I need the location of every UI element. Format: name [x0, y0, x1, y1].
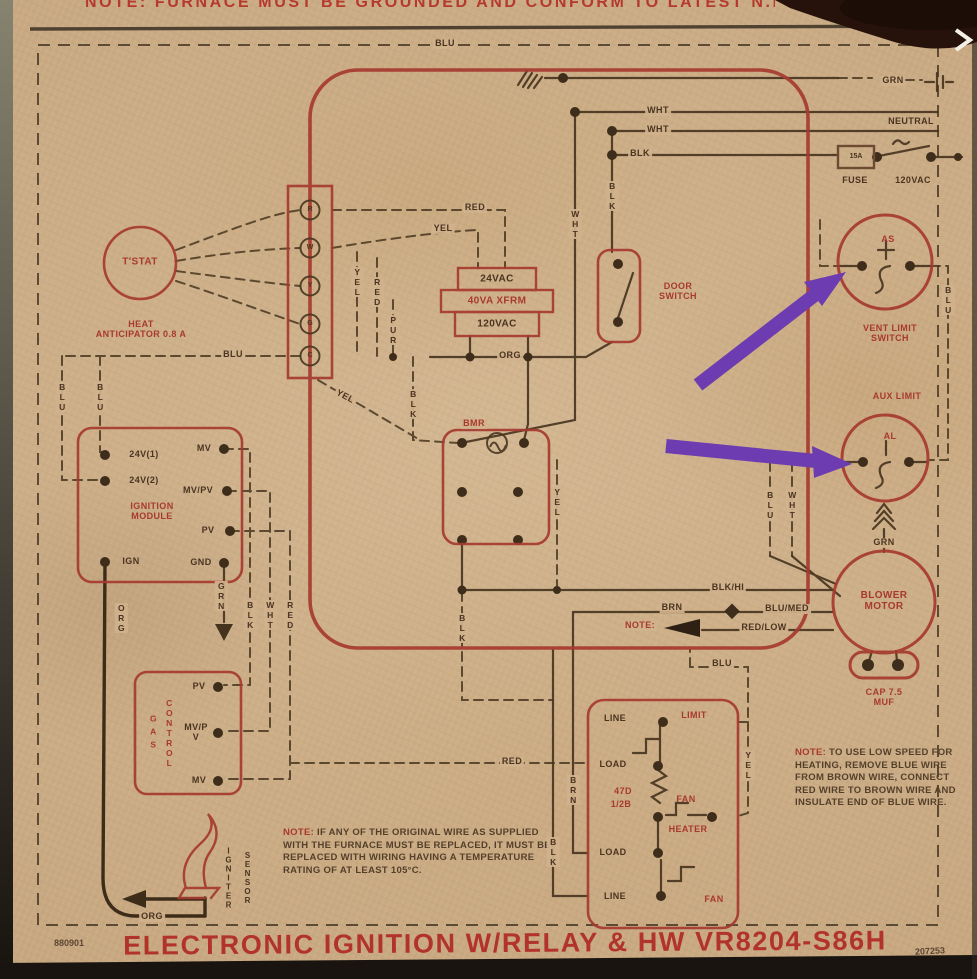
wire-label-brn-v1: BRN [567, 775, 580, 805]
module-pv-label: PV [202, 526, 215, 536]
module-24v1-label: 24V(1) [129, 450, 158, 460]
wire-label-blk-v3: BLK [456, 613, 469, 643]
photo-left-edge [0, 0, 13, 979]
wire-label-wht-2: WHT [645, 125, 671, 135]
ground-triangle-icon [215, 624, 233, 641]
fan-line-bottom-label: LINE [604, 892, 626, 902]
part-code-right: 207253 [915, 945, 946, 957]
wire-label-red-v1: RED [371, 277, 384, 307]
annotation-arrow-vent-limit [698, 294, 816, 385]
low-speed-note: NOTE: TO USE LOW SPEED FOR HEATING, REMO… [795, 747, 967, 810]
sensor-word: SENSOR [243, 851, 251, 905]
module-gnd-label: GND [190, 558, 211, 568]
top-border-line [30, 26, 975, 29]
fan-coil2-label: 1/2B [611, 800, 632, 810]
fan-mid-label: FAN [676, 795, 695, 805]
speed-note-pointer-label: NOTE: [623, 621, 657, 631]
wire-label-blk-v5: BLK [547, 837, 560, 867]
wire-label-org-1: ORG [497, 351, 523, 361]
wire-label-blu-v4: BLU [764, 490, 777, 520]
module-ign-label: IGN [122, 557, 139, 567]
capacitor-label: CAP 7.5 MUF [857, 688, 911, 708]
wire-label-blk-v1: BLK [606, 181, 619, 211]
bmr-relay-label: BMR [461, 419, 487, 429]
gas-mvpv-label: MV/PV [183, 723, 209, 743]
fuse-amp-label: 15A [850, 153, 863, 161]
vent-limit-code: AS [881, 235, 894, 245]
part-code-left: 880901 [54, 938, 84, 948]
note1-prefix: NOTE: [283, 827, 314, 838]
vent-limit-circle [838, 215, 932, 309]
terminal-g: G [307, 320, 312, 328]
wire-label-red-low: RED/LOW [739, 623, 788, 633]
aux-limit-label: AUX LIMIT [873, 392, 922, 402]
heat-anticipator-label: HEAT ANTICIPATOR 0.8 A [95, 320, 187, 340]
wire-label-grn-2: GRN [871, 538, 896, 548]
transformer-xfrm-label: 40VA XFRM [468, 296, 527, 307]
wire-replacement-note: NOTE: IF ANY OF THE ORIGINAL WIRE AS SUP… [283, 827, 553, 877]
wire-label-yel-v3: YEL [742, 750, 755, 780]
wire-label-pur-v: PUR [387, 315, 400, 345]
fan-load-top-label: LOAD [599, 760, 626, 770]
igniter-sensor-icon [179, 814, 219, 898]
fan-bottom-label: FAN [704, 895, 723, 905]
terminal-r: R [307, 206, 312, 214]
module-24v2-label: 24V(2) [129, 476, 158, 486]
aux-limit-code: AL [884, 432, 897, 442]
terminal-c: C [307, 352, 312, 360]
ignition-module-title: IGNITION MODULE [116, 502, 188, 522]
wire-label-red-v2: RED [284, 600, 297, 630]
wire-label-wht-v2: WHT [264, 600, 277, 630]
wire-label-wht-1: WHT [645, 106, 671, 116]
gas-mv-label: MV [192, 776, 206, 786]
wire-label-blu-v3: BLU [942, 285, 955, 315]
igniter-word: IGNITER [224, 847, 232, 910]
voltage-label: 120VAC [895, 176, 931, 186]
transformer-120vac-label: 120VAC [477, 319, 516, 330]
furnace-wiring-diagram-photo: NOTE: FURNACE MUST BE GROUNDED AND CONFO… [0, 0, 977, 979]
transformer-24vac-label: 24VAC [480, 274, 514, 285]
gas-control-word2: CONTROL [165, 698, 174, 768]
wire-label-wht-v1: WHT [569, 209, 582, 239]
wire-label-blu-v2: BLU [94, 382, 107, 412]
wire-label-yel-1: YEL [432, 224, 455, 234]
note2-prefix: NOTE: [795, 747, 826, 758]
blower-motor-label: BLOWER MOTOR [850, 590, 918, 612]
note-pointer-wedge [664, 619, 700, 637]
annotation-arrows [666, 272, 852, 478]
door-switch-label: DOOR SWITCH [649, 282, 707, 302]
igniter-arrow-head [122, 890, 146, 908]
neutral-label: NEUTRAL [888, 117, 934, 127]
annotation-arrow-aux-limit [666, 446, 816, 461]
grounding-note: NOTE: FURNACE MUST BE GROUNDED AND CONFO… [85, 0, 775, 12]
wire-label-blk-v2: BLK [407, 389, 420, 419]
wire-label-red-1: RED [463, 203, 487, 213]
wire-label-blu-top: BLU [433, 39, 457, 49]
wire-label-org-2: ORG [139, 912, 165, 922]
tstat-label: T'STAT [122, 257, 158, 268]
wire-label-wht-v3: WHT [786, 490, 799, 520]
fan-heater-label: HEATER [669, 825, 708, 835]
terminal-y: Y [308, 282, 313, 290]
wire-label-yel-v2: YEL [551, 487, 564, 517]
wire-label-blk-hi: BLK/HI [710, 583, 746, 593]
wire-label-blu-med: BLU/MED [763, 604, 811, 614]
module-mvpv-label: MV/PV [183, 486, 213, 496]
fan-load-bottom-label: LOAD [599, 848, 626, 858]
wire-label-brn-1: BRN [660, 603, 685, 613]
bmr-relay-box [443, 430, 549, 544]
fan-coil1-label: 47D [614, 787, 632, 797]
fan-limit-label: LIMIT [681, 711, 707, 721]
wire-label-blu-v1: BLU [56, 382, 69, 412]
wire-label-grn-top: GRN [880, 76, 905, 86]
diagram-title: ELECTRONIC IGNITION W/RELAY & HW VR8204-… [100, 927, 910, 960]
wire-label-blk-1: BLK [628, 149, 652, 159]
wire-label-grn-v1: GRN [215, 581, 228, 611]
gas-pv-label: PV [193, 682, 206, 692]
fuse-label: FUSE [842, 176, 868, 186]
photo-right-edge [972, 0, 977, 979]
wire-label-blu-2: BLU [221, 350, 245, 360]
wire-label-org-v1: ORG [115, 603, 128, 633]
wire-label-yel-v1: YEL [351, 267, 364, 297]
terminal-w: W [307, 244, 314, 252]
note1-body: IF ANY OF THE ORIGINAL WIRE AS SUPPLIED … [283, 827, 551, 876]
gas-control-word1: GAS [149, 714, 158, 753]
wire-label-blk-v4: BLK [244, 600, 257, 630]
aux-limit-circle [842, 415, 928, 501]
wire-label-red-2: RED [500, 757, 524, 767]
module-mv-label: MV [197, 444, 211, 454]
fan-line-top-label: LINE [604, 714, 626, 724]
capacitor-outline [850, 652, 918, 678]
wire-label-blu-3: BLU [710, 659, 734, 669]
vent-limit-label: VENT LIMIT SWITCH [849, 324, 931, 344]
